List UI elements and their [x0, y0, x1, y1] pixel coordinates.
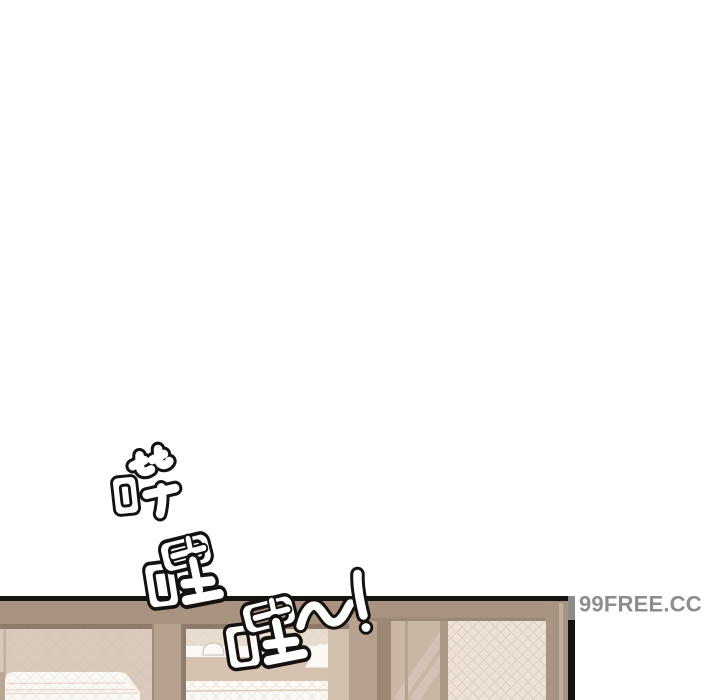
svg-text:99FREE.CC: 99FREE.CC — [579, 592, 702, 617]
